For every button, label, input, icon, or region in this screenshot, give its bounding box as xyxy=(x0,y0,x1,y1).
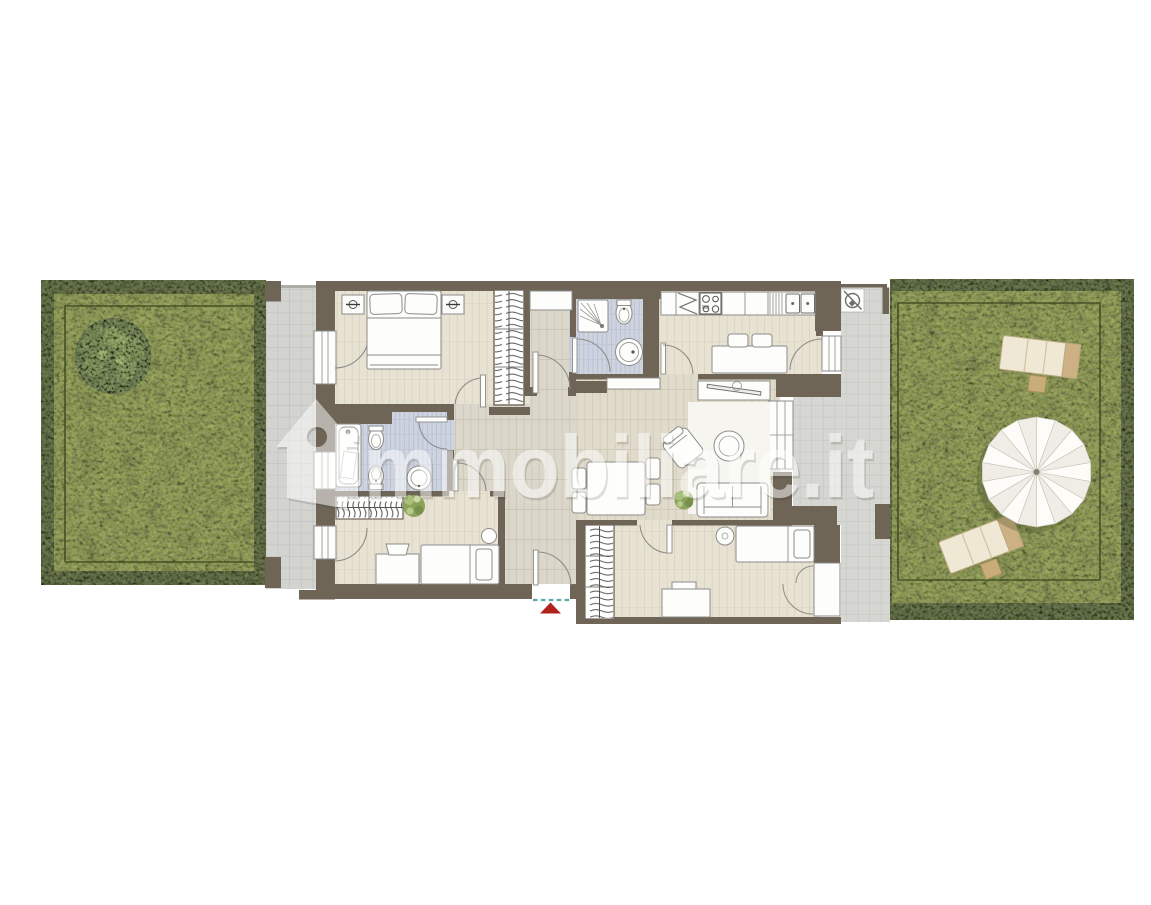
svg-text:immobiliare.it: immobiliare.it xyxy=(341,417,874,516)
